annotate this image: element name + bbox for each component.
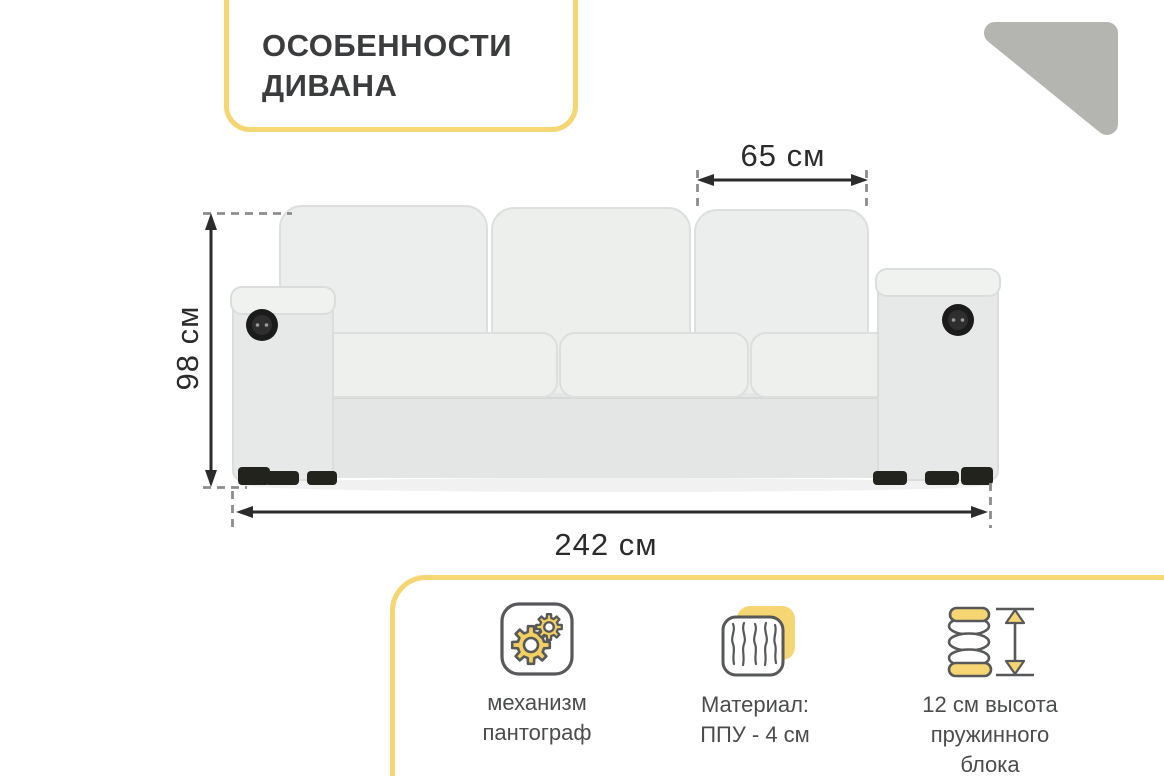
- dimension-label-height: 98 см: [170, 303, 206, 393]
- sofa-base: [300, 393, 940, 478]
- gears-icon: [498, 600, 576, 678]
- sofa-shadow: [240, 478, 990, 492]
- feature-spring-label-line1: 12 см высота: [878, 690, 1102, 720]
- feature-mechanism: механизм пантограф: [437, 600, 637, 748]
- feature-spring-label-line3: блока: [878, 750, 1102, 776]
- feature-mechanism-label-line1: механизм: [437, 688, 637, 718]
- feature-material: Материал: ППУ - 4 см: [652, 600, 858, 750]
- dimension-label-cushion-width: 65 см: [713, 138, 853, 174]
- sofa-feet: [238, 467, 993, 485]
- spring-height-icon: [938, 600, 1042, 682]
- usb-port-icon-right: [942, 304, 974, 336]
- sofa-seat-cushions: [287, 333, 936, 397]
- feature-spring-label-line2: пружинного: [878, 720, 1102, 750]
- dimension-label-total-width: 242 см: [526, 527, 686, 563]
- feature-material-label-line1: Материал:: [652, 690, 858, 720]
- usb-port-icon-left: [246, 309, 278, 341]
- dimension-dashed-guides: [203, 170, 991, 528]
- sofa-illustration: [225, 195, 1005, 495]
- feature-spring-block: 12 см высота пружинного блока: [878, 600, 1102, 776]
- page-title-line2: ДИВАНА: [262, 66, 573, 106]
- title-card: ОСОБЕННОСТИ ДИВАНА: [224, 0, 578, 132]
- sofa-back-cushions: [280, 206, 868, 455]
- sofa-armrest-right: [876, 269, 1000, 480]
- sofa-features-infographic: ОСОБЕННОСТИ ДИВАНА: [0, 0, 1164, 776]
- sofa-armrest-left: [231, 287, 335, 480]
- foam-material-icon: [713, 600, 797, 680]
- feature-material-label-line2: ППУ - 4 см: [652, 720, 858, 750]
- dimension-arrows: [205, 174, 988, 518]
- feature-mechanism-label-line2: пантограф: [437, 718, 637, 748]
- page-title-line1: ОСОБЕННОСТИ: [262, 26, 573, 66]
